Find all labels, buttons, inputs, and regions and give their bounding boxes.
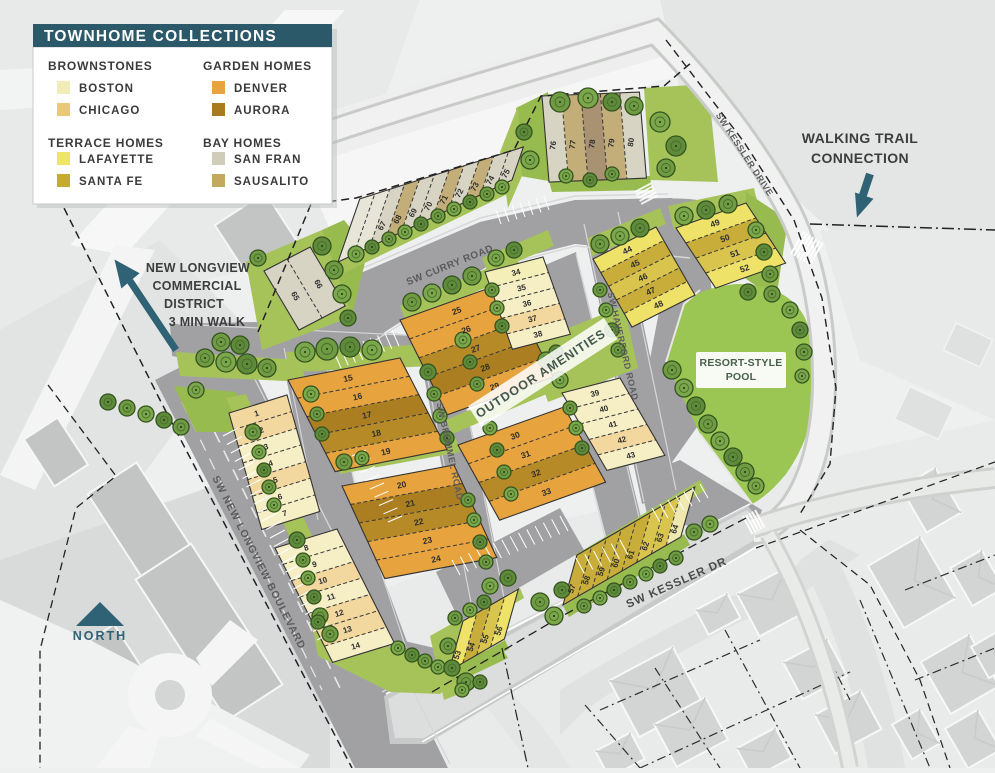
svg-text:DISTRICT: DISTRICT bbox=[164, 297, 224, 311]
svg-text:CONNECTION: CONNECTION bbox=[811, 150, 909, 166]
svg-text:POOL: POOL bbox=[726, 371, 757, 383]
svg-text:TERRACE HOMES: TERRACE HOMES bbox=[48, 136, 164, 150]
svg-text:BOSTON: BOSTON bbox=[79, 83, 134, 95]
svg-text:NORTH: NORTH bbox=[73, 629, 127, 643]
svg-text:SAUSALITO: SAUSALITO bbox=[234, 176, 309, 188]
svg-text:AURORA: AURORA bbox=[234, 105, 290, 117]
svg-text:NEW LONGVIEW: NEW LONGVIEW bbox=[146, 261, 250, 275]
svg-text:WALKING TRAIL: WALKING TRAIL bbox=[802, 130, 918, 146]
svg-text:CHICAGO: CHICAGO bbox=[79, 105, 140, 117]
svg-text:80: 80 bbox=[626, 137, 636, 148]
svg-text:77: 77 bbox=[568, 139, 578, 150]
svg-text:COMMERCIAL: COMMERCIAL bbox=[152, 279, 241, 293]
svg-text:LAFAYETTE: LAFAYETTE bbox=[79, 154, 154, 166]
svg-text:79: 79 bbox=[606, 137, 616, 148]
svg-text:BROWNSTONES: BROWNSTONES bbox=[48, 59, 153, 73]
svg-text:SAN FRAN: SAN FRAN bbox=[234, 154, 301, 166]
svg-text:RESORT-STYLE: RESORT-STYLE bbox=[700, 357, 783, 369]
svg-text:SANTA FE: SANTA FE bbox=[79, 176, 143, 188]
svg-text:76: 76 bbox=[548, 140, 558, 151]
svg-text:TOWNHOME COLLECTIONS: TOWNHOME COLLECTIONS bbox=[44, 28, 277, 45]
svg-text:DENVER: DENVER bbox=[234, 83, 288, 95]
svg-text:GARDEN HOMES: GARDEN HOMES bbox=[203, 59, 312, 73]
svg-text:78: 78 bbox=[587, 138, 597, 149]
svg-text:BAY HOMES: BAY HOMES bbox=[203, 136, 282, 150]
svg-text:3 MIN WALK: 3 MIN WALK bbox=[169, 315, 246, 329]
